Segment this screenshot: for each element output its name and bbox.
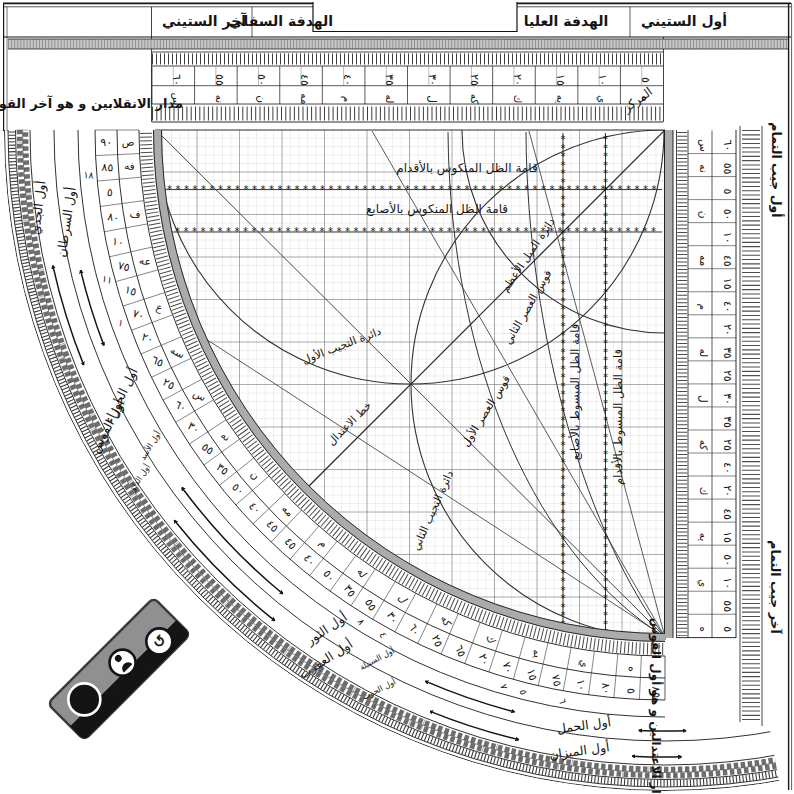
asterisk-marker: * <box>193 184 198 195</box>
asterisk-marker: * <box>634 226 639 237</box>
asterisk-marker: * <box>575 226 580 237</box>
asterisk-marker: * <box>380 184 385 195</box>
arc-scale-numeral: ٨٠ <box>599 682 613 695</box>
sixty-scale-abjad: مه <box>299 93 311 104</box>
sixty-scale-numeral: ١٥ <box>554 74 567 86</box>
asterisk-marker: * <box>346 184 351 195</box>
arc-scale-numeral: ٣٥ <box>341 582 358 599</box>
cosine-scale-numeral: ١٥ <box>721 278 734 290</box>
cosine-scale-abjad: كه <box>698 440 710 451</box>
asterisk-marker: * <box>490 226 495 237</box>
cosine-scale-numeral: ٤٠ <box>721 462 734 474</box>
cosine-scale-abjad: نه <box>698 164 710 173</box>
asterisk-marker: * <box>286 184 291 195</box>
cosine-scale-numeral: ٥٥ <box>721 600 734 612</box>
cosine-scale-abjad: ي <box>697 579 710 587</box>
arc-scale-numeral: ٥٥ <box>199 440 216 457</box>
asterisk-marker: * <box>431 184 436 195</box>
asterisk-marker: * <box>354 184 359 195</box>
asterisk-marker: * <box>244 184 249 195</box>
asterisk-marker: * <box>371 226 376 237</box>
cosine-scale-numeral: ٢٥ <box>721 370 734 382</box>
asterisk-marker: * <box>345 226 350 237</box>
asterisk-marker: * <box>295 184 300 195</box>
asterisk-marker: * <box>329 184 334 195</box>
sixty-scale-numeral: ٥٠ <box>255 74 268 86</box>
asterisk-marker: * <box>635 184 640 195</box>
asterisk-marker: * <box>550 184 555 195</box>
asterisk-marker: * <box>260 226 265 237</box>
asterisk-marker: * <box>397 184 402 195</box>
cosine-end-label: آخر جيب التمام <box>767 540 783 634</box>
arc-scale-abjad: ن <box>249 468 263 482</box>
minor-band-mark: ٧ <box>498 683 510 691</box>
cosine-scale-numeral: ٣٥ <box>721 416 734 428</box>
cosine-start-label: أول جيب التمام <box>768 122 785 217</box>
sixty-scale-numeral: ١٠ <box>596 74 609 86</box>
arc-scale-numeral: ٥٠ <box>229 480 246 498</box>
asterisk-marker: * <box>456 226 461 237</box>
cosine-scale-numeral: ١٠ <box>721 577 734 589</box>
arc-scale-abjad: ف <box>129 207 142 221</box>
cosine-scale-abjad: مه <box>698 255 710 266</box>
asterisk-marker: * <box>337 184 342 195</box>
cosine-scale-numeral: ٤٠ <box>721 301 734 313</box>
asterisk-marker: * <box>328 226 333 237</box>
title-first-sixty: أول الستيني <box>641 12 727 30</box>
minor-band-mark: ١٨ <box>83 169 94 181</box>
reversed-shadow-digits-label: قامة الظل المنكوس بالأصابع <box>366 201 508 217</box>
asterisk-marker: * <box>575 184 580 195</box>
minor-band-mark: ٨ <box>355 617 367 627</box>
asterisk-marker: * <box>609 226 614 237</box>
sixty-scale-numeral: ٥٥ <box>213 74 226 86</box>
sixty-scale-numeral: ٥ <box>639 77 652 83</box>
asterisk-marker: * <box>405 184 410 195</box>
minor-band-mark: ٦ <box>557 698 569 705</box>
asterisk-marker: * <box>303 226 308 237</box>
asterisk-marker: * <box>414 184 419 195</box>
asterisk-marker: * <box>218 226 223 237</box>
asterisk-marker: * <box>184 184 189 195</box>
gray-band <box>8 39 788 49</box>
cosine-scale-abjad: م <box>697 304 710 311</box>
arc-scale-numeral: ٣٠ <box>185 419 202 436</box>
arc-scale-numeral: ٣٠ <box>384 610 401 627</box>
sixty-scale-abjad: له <box>384 95 396 104</box>
sixty-scale-numeral: ٣٠ <box>426 74 439 86</box>
asterisk-marker: * <box>235 184 240 195</box>
asterisk-marker: * <box>176 184 181 195</box>
cosine-scale-numeral: ٣٥ <box>721 347 734 359</box>
sixty-scale-numeral: ٤٥ <box>298 74 311 86</box>
arc-scale-numeral: ٣٥ <box>214 461 231 479</box>
asterisk-marker: * <box>167 184 172 195</box>
asterisk-marker: * <box>252 226 257 237</box>
cosine-scale-abjad: ل <box>698 395 710 403</box>
sine-quadrant-diagram: آخر الستيني الهدفة السفلي الهدفة العليا … <box>0 0 794 794</box>
asterisk-marker: * <box>175 226 180 237</box>
asterisk-marker: * <box>481 226 486 237</box>
asterisk-marker: * <box>354 226 359 237</box>
arc-scale-numeral: ٤٥ <box>263 518 281 536</box>
cosine-scale-numeral: ٢٠ <box>721 324 734 336</box>
sixty-scale-numeral: ٣٥ <box>383 74 396 86</box>
zodiac-companion-label: أول الحوت <box>361 676 398 701</box>
grid-right-rim <box>665 130 674 638</box>
sixty-scale-abjad: ن <box>256 95 268 103</box>
arc-scale-abjad: كه <box>439 613 454 628</box>
sixty-scale-numeral: ٢٠ <box>511 74 524 86</box>
asterisk-marker: * <box>473 226 478 237</box>
asterisk-marker: * <box>286 226 291 237</box>
zodiac-companion-label: أول الأسد <box>137 429 162 462</box>
asterisk-marker: * <box>226 226 231 237</box>
asterisk-marker: * <box>218 184 223 195</box>
cosine-scale-numeral: ٢٠ <box>721 485 734 497</box>
reversed-shadow-feet-label: قامة الظل المنكوس بالأقدام <box>396 160 537 176</box>
cell-separator <box>104 224 147 232</box>
asterisk-marker: * <box>490 184 495 195</box>
asterisk-marker: * <box>363 184 368 195</box>
arc-scale-numeral: ٥٠ <box>320 567 338 584</box>
asterisk-marker: * <box>482 184 487 195</box>
arc-scale-abjad: عه <box>138 254 152 269</box>
arc-scale-abjad: له <box>355 566 370 580</box>
asterisk-marker: * <box>227 184 232 195</box>
extended-shadow-feet-label: قامة الظل المبسوط بالأقدام <box>611 349 626 485</box>
cosine-scale-abjad: ك <box>698 487 710 496</box>
arc-scale-numeral: ٧٥ <box>549 673 564 687</box>
asterisk-marker: * <box>567 184 572 195</box>
asterisk-marker: * <box>320 184 325 195</box>
sixty-scale-abjad: م <box>341 96 354 103</box>
asterisk-marker: * <box>269 184 274 195</box>
asterisk-marker: * <box>651 226 656 237</box>
arc-scale-numeral: ١٥ <box>524 667 540 682</box>
minor-band-mark: ٥ <box>518 688 530 696</box>
asterisk-marker: * <box>618 184 623 195</box>
asterisk-marker: * <box>533 184 538 195</box>
asterisk-marker: * <box>184 226 189 237</box>
minor-band-mark: ١١ <box>101 273 114 286</box>
asterisk-marker: * <box>583 226 588 237</box>
arc-scale-numeral: ٦٠ <box>172 398 189 415</box>
asterisk-marker: * <box>261 184 266 195</box>
arc-scale-numeral: ٨٥ <box>101 161 114 175</box>
cosine-scale-abjad: له <box>698 348 710 357</box>
asterisk-marker: * <box>192 226 197 237</box>
asterisk-marker: * <box>524 184 529 195</box>
asterisk-marker: * <box>465 184 470 195</box>
arc-scale-numeral: ١٥ <box>123 283 138 299</box>
cosine-scale-numeral: ٥ <box>721 626 734 632</box>
asterisk-marker: * <box>626 226 631 237</box>
cell-separator <box>563 648 571 691</box>
asterisk-marker: * <box>388 184 393 195</box>
sixty-scale-abjad: كه <box>469 94 481 105</box>
cosine-scale-numeral: ٣٠ <box>721 393 734 405</box>
asterisk-marker: * <box>422 184 427 195</box>
arc-scale-numeral: ٤٠ <box>246 499 264 517</box>
arc-scale-abjad: نه <box>219 429 233 444</box>
arc-scale-abjad: ك <box>484 633 498 645</box>
cosine-scale-numeral: ٦٠ <box>721 140 734 152</box>
arc-scale-numeral: ٤٠ <box>301 552 319 569</box>
asterisk-marker: * <box>566 226 571 237</box>
cosine-scale-numeral: ٤٥ <box>721 255 734 267</box>
asterisk-marker: * <box>541 184 546 195</box>
arc-scale-numeral: ٩٠ <box>100 136 112 149</box>
asterisk-marker: * <box>439 184 444 195</box>
sixty-scale-abjad: يه <box>555 95 567 104</box>
arc-scale-numeral: ٥ <box>106 186 113 200</box>
cosine-scale-numeral: ٥٠ <box>721 209 734 221</box>
asterisk-marker: * <box>201 226 206 237</box>
asterisk-marker: * <box>516 184 521 195</box>
asterisk-marker: * <box>643 226 648 237</box>
asterisk-marker: * <box>515 226 520 237</box>
asterisk-marker: * <box>405 226 410 237</box>
sixty-scale-abjad: ه <box>640 96 652 102</box>
arc-scale-numeral: ٦٥ <box>452 643 468 659</box>
arc-scale-numeral: ٢٠ <box>140 330 156 346</box>
cosine-scale-numeral: ٤٥ <box>721 508 734 520</box>
cc-license-badge: cc ↺ BY SA <box>48 598 191 741</box>
asterisk-marker: * <box>362 226 367 237</box>
zodiac-label: أول الحمل <box>556 713 612 737</box>
arc-scale-abjad: يه <box>531 648 545 659</box>
sixty-scale-abjad: نه <box>214 95 226 104</box>
asterisk-marker: * <box>464 226 469 237</box>
asterisk-marker: * <box>252 184 257 195</box>
asterisk-marker: * <box>592 226 597 237</box>
asterisk-marker: * <box>617 226 622 237</box>
asterisk-marker: * <box>643 184 648 195</box>
asterisk-marker: * <box>592 184 597 195</box>
asterisk-marker: * <box>210 184 215 195</box>
cosine-scale-numeral: ٥ <box>721 189 734 195</box>
asterisk-marker: * <box>320 226 325 237</box>
asterisk-marker: * <box>439 226 444 237</box>
asterisk-marker: * <box>498 226 503 237</box>
arc-scale-abjad: سه <box>169 343 187 360</box>
zodiac-label: أول السرطان <box>53 186 80 259</box>
asterisk-marker: * <box>448 184 453 195</box>
asterisk-marker: * <box>294 226 299 237</box>
asterisk-marker: * <box>278 184 283 195</box>
cell-separator <box>513 637 525 679</box>
arc-scale-abjad: ع <box>154 300 165 315</box>
arc-scale-abjad: فه <box>124 159 135 172</box>
sixty-scale-numeral: ٢٥ <box>468 74 481 86</box>
arc-scale-numeral: ٧٥ <box>116 259 131 275</box>
asterisk-marker: * <box>337 226 342 237</box>
asterisk-marker: * <box>413 226 418 237</box>
asterisk-marker: * <box>609 184 614 195</box>
asterisk-marker: * <box>422 226 427 237</box>
arc-scale-abjad: س <box>191 387 208 404</box>
cosine-scale-numeral: ٥٠ <box>721 554 734 566</box>
arc-scale-abjad: ي <box>577 658 591 668</box>
cosine-scale-numeral: ١٠ <box>721 232 734 244</box>
asterisk-marker: * <box>311 226 316 237</box>
asterisk-marker: * <box>447 226 452 237</box>
title-lower-sight: الهدفة السفلي <box>229 13 333 30</box>
arc-scale-abjad: ص <box>122 135 135 148</box>
asterisk-marker: * <box>388 226 393 237</box>
asterisk-marker: * <box>499 184 504 195</box>
cosine-scale-abjad: ه <box>698 627 710 633</box>
arc-scale-numeral: ٧٠ <box>131 307 146 323</box>
asterisk-marker: * <box>243 226 248 237</box>
sixty-scale-abjad: س <box>171 93 183 106</box>
zodiac-companion-label: أول السنبلة <box>358 645 396 672</box>
asterisk-marker: * <box>303 184 308 195</box>
minor-band-mark: ٤ <box>377 630 389 640</box>
title-upper-sight: الهدفة العليا <box>524 13 609 30</box>
arc-scale-abjad: م <box>316 537 330 550</box>
solstice-orbit-label: مدار الانقلابين و هو آخر القوس <box>0 95 183 111</box>
arc-scale-numeral: ٤٥ <box>282 535 300 553</box>
zodiac-arrow <box>174 520 274 620</box>
asterisk-marker: * <box>235 226 240 237</box>
cosine-scale-abjad: يه <box>698 533 710 542</box>
arc-scale-abjad: مه <box>280 502 296 518</box>
extended-shadow-digits-label: قامة الظل المبسوط بالأصابع <box>568 324 583 461</box>
asterisk-marker: * <box>371 184 376 195</box>
cosine-scale-numeral: ١٥ <box>721 531 734 543</box>
minor-band-mark: ١ <box>117 317 125 329</box>
asterisk-marker: * <box>379 226 384 237</box>
equinox-orbit-label: مدار الاعتدالين و هو أول القوس <box>648 618 664 794</box>
cosine-scale-numeral: ٢٥ <box>721 439 734 451</box>
arc-scale-numeral: ٥٥ <box>362 596 379 613</box>
arc-scale-numeral: ٨٠ <box>107 210 121 225</box>
sixty-scale-abjad: ي <box>596 95 609 103</box>
asterisk-marker: * <box>269 226 274 237</box>
asterisk-marker: * <box>312 184 317 195</box>
sixty-scale-abjad: ك <box>512 95 524 104</box>
arc-scale-numeral: ١٠ <box>574 678 589 692</box>
arc-scale-numeral: ٢٠ <box>476 652 492 667</box>
arc-scale-numeral: ٢٥ <box>429 633 446 649</box>
arc-scale-numeral: ٥ <box>624 688 637 695</box>
checker-tick <box>636 766 637 778</box>
asterisk-marker: * <box>209 226 214 237</box>
arc-scale-abjad: ه <box>627 666 639 672</box>
asterisk-marker: * <box>507 226 512 237</box>
cosine-scale-abjad: س <box>698 139 710 152</box>
asterisk-marker: * <box>396 226 401 237</box>
asterisk-marker: * <box>507 184 512 195</box>
asterisk-marker: * <box>201 184 206 195</box>
sixty-scale-numeral: ٤٠ <box>341 74 354 86</box>
arc-scale-numeral: ٦٠ <box>406 622 423 638</box>
sixty-scale-numeral: ٦٠ <box>170 74 183 86</box>
arc-scale-numeral: ٦٥ <box>149 353 165 370</box>
sight-notch <box>313 2 517 32</box>
arc-scale-numeral: ٧٠ <box>500 660 516 675</box>
arc-scale-numeral: ١٠ <box>111 235 125 250</box>
asterisk-marker: * <box>626 184 631 195</box>
asterisk-marker: * <box>277 226 282 237</box>
cosine-scale-abjad: ن <box>698 211 710 219</box>
asterisk-marker: * <box>524 226 529 237</box>
sixty-scale-abjad: ل <box>427 95 439 103</box>
asterisk-marker: * <box>473 184 478 195</box>
asterisk-marker: * <box>584 184 589 195</box>
asterisk-marker: * <box>456 184 461 195</box>
asterisk-marker: * <box>430 226 435 237</box>
arc-scale-numeral: ٢٥ <box>160 376 177 393</box>
asterisk-marker: * <box>652 184 657 195</box>
arc-scale-abjad: ل <box>396 592 410 605</box>
cosine-scale-numeral: ٥٥ <box>721 163 734 175</box>
